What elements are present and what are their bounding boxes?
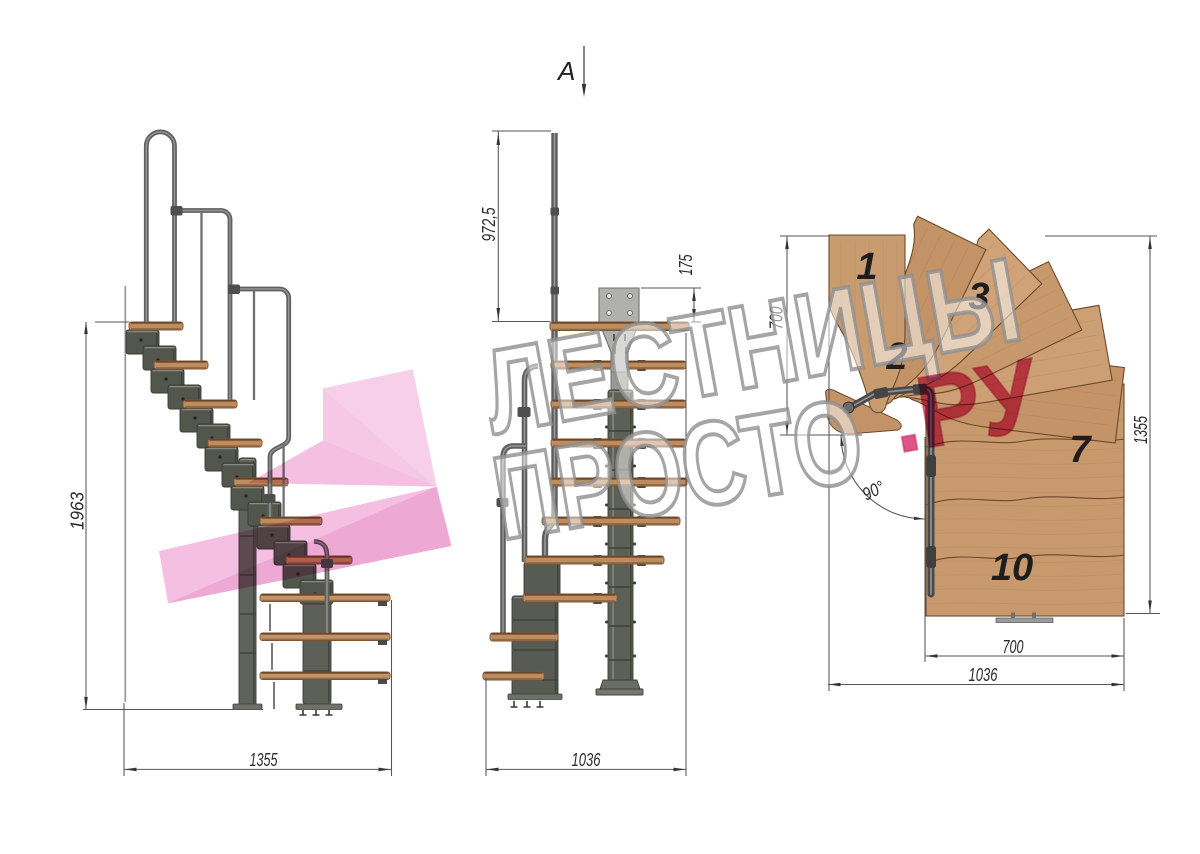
svg-text:1355: 1355	[1131, 415, 1151, 444]
svg-text:1036: 1036	[969, 665, 999, 685]
svg-text:972,5: 972,5	[479, 207, 499, 242]
svg-text:1963: 1963	[68, 492, 88, 530]
svg-text:7: 7	[1069, 429, 1092, 471]
svg-text:1355: 1355	[250, 750, 279, 770]
svg-text:1036: 1036	[572, 750, 602, 770]
svg-text:175: 175	[676, 254, 696, 276]
svg-text:10: 10	[991, 547, 1033, 589]
svg-text:700: 700	[1003, 637, 1024, 657]
svg-text:A: A	[556, 56, 575, 86]
